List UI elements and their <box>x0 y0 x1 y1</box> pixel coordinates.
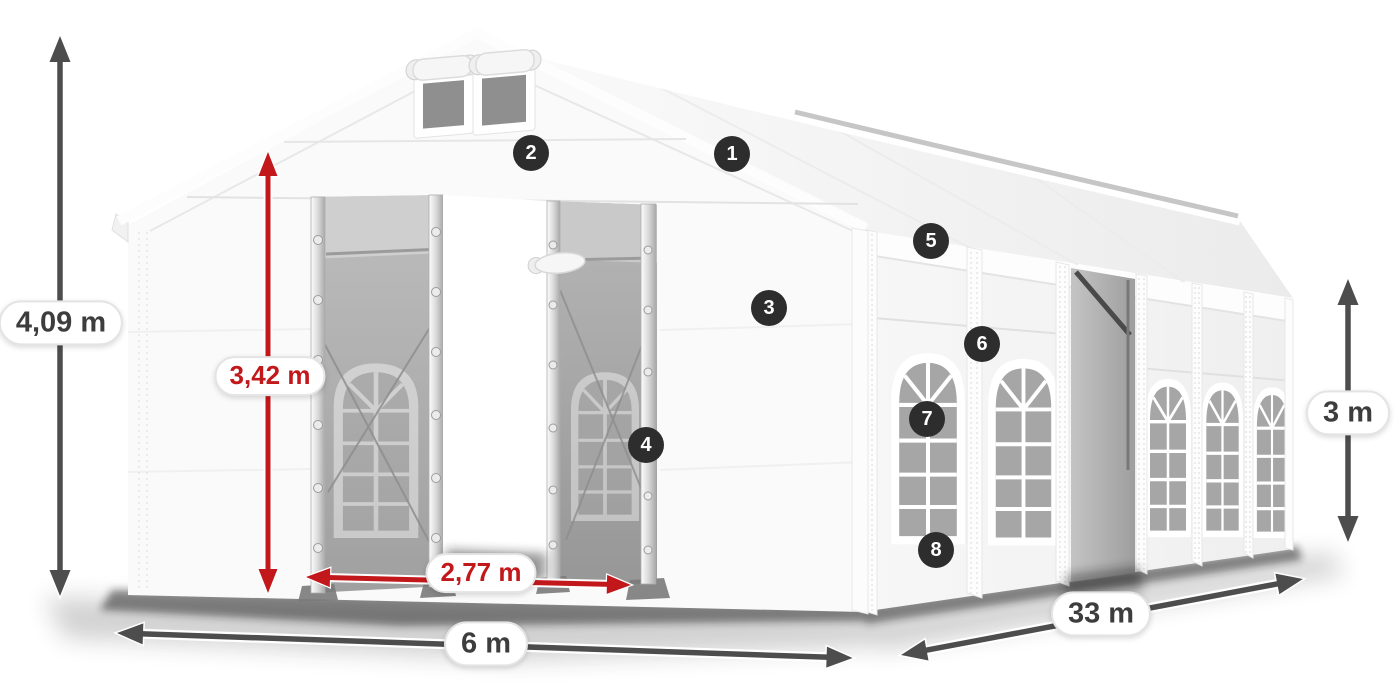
callout-8[interactable]: 8 <box>918 532 954 568</box>
callout-7[interactable]: 7 <box>909 401 945 437</box>
dimension-total-height: 4,09 m <box>0 300 123 345</box>
tent-illustration <box>0 0 1400 700</box>
front-open-span <box>443 195 548 586</box>
callout-6[interactable]: 6 <box>964 326 1000 362</box>
callout-3[interactable]: 3 <box>751 290 787 326</box>
callout-2[interactable]: 2 <box>513 135 549 171</box>
front-entrance-left <box>298 195 456 602</box>
tent-dimensions-diagram: 4,09 m 3,42 m 2,77 m 6 m 33 m 3 m 1 2 3 … <box>0 0 1400 700</box>
dimension-entrance-height: 3,42 m <box>215 356 326 396</box>
callout-4[interactable]: 4 <box>628 427 664 463</box>
side-entrance-opening <box>1071 268 1135 582</box>
dimension-side-length: 33 m <box>1051 591 1151 636</box>
dimension-side-wall-height: 3 m <box>1306 390 1390 435</box>
callout-1[interactable]: 1 <box>714 136 750 172</box>
front-entrance-right <box>527 201 670 600</box>
dimension-entrance-width: 2,77 m <box>426 553 537 593</box>
dimension-front-width: 6 m <box>444 621 528 666</box>
callout-5[interactable]: 5 <box>913 223 949 259</box>
